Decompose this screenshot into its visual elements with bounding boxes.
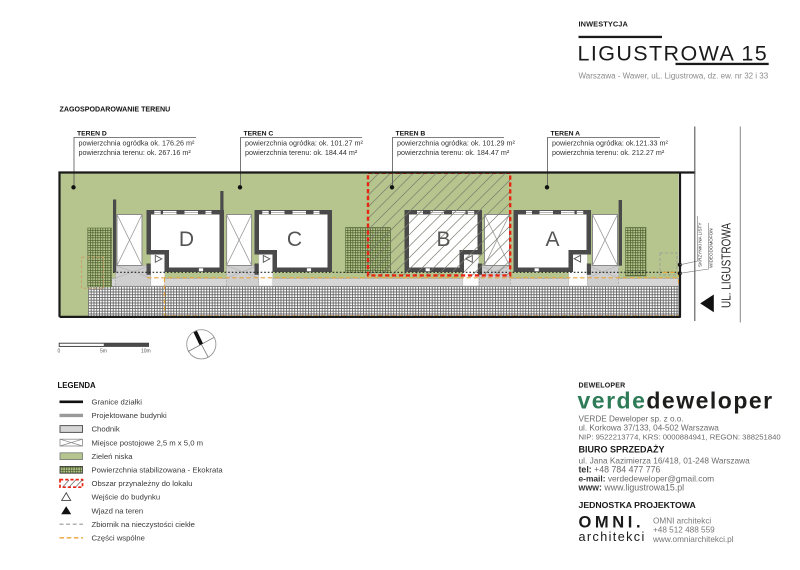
svg-text:Wjazd na teren: Wjazd na teren bbox=[92, 506, 144, 515]
svg-text:BIURO SPRZEDAŻY: BIURO SPRZEDAŻY bbox=[579, 445, 665, 455]
svg-text:JEDNOSTKA PROJEKTOWA: JEDNOSTKA PROJEKTOWA bbox=[579, 500, 697, 510]
svg-text:WIDEODOMOFON: WIDEODOMOFON bbox=[709, 228, 714, 268]
svg-text:ZAGOSPODAROWANIE TERENU: ZAGOSPODAROWANIE TERENU bbox=[60, 106, 171, 114]
svg-text:10m: 10m bbox=[141, 349, 151, 355]
svg-text:Obszar przynależny do lokalu: Obszar przynależny do lokalu bbox=[92, 479, 193, 488]
svg-text:powierzchnia terenu: ok. 184.4: powierzchnia terenu: ok. 184.47 m² bbox=[397, 148, 510, 157]
svg-text:TEREN D: TEREN D bbox=[77, 130, 107, 137]
svg-text:Granice działki: Granice działki bbox=[92, 398, 143, 407]
svg-text:verdedeweloper: verdedeweloper bbox=[578, 388, 774, 414]
svg-text:Warszawa - Wawer, uL. Ligustro: Warszawa - Wawer, uL. Ligustrowa, dz. ew… bbox=[579, 71, 769, 80]
svg-text:TEREN C: TEREN C bbox=[244, 130, 274, 137]
svg-text:OMNI architekci: OMNI architekci bbox=[653, 516, 711, 525]
svg-text:Miejsce postojowe 2,5 m x 5,0: Miejsce postojowe 2,5 m x 5,0 m bbox=[92, 438, 204, 447]
svg-text:architekci: architekci bbox=[579, 530, 646, 544]
svg-text:powierzchnia ogródka: ok.121.3: powierzchnia ogródka: ok.121.33 m² bbox=[552, 139, 668, 148]
svg-text:D: D bbox=[179, 228, 194, 251]
svg-text:powierzchnia ogródka: ok. 101.: powierzchnia ogródka: ok. 101.27 m² bbox=[245, 139, 363, 148]
svg-text:B: B bbox=[436, 228, 450, 251]
svg-text:Projektowane budynki: Projektowane budynki bbox=[92, 411, 168, 420]
svg-text:SKRZYNKI NA LISTY: SKRZYNKI NA LISTY bbox=[698, 223, 703, 267]
svg-text:powierzchnia terenu: ok. 184.4: powierzchnia terenu: ok. 184.44 m² bbox=[245, 148, 358, 157]
svg-text:www.omniarchitekci.pl: www.omniarchitekci.pl bbox=[652, 535, 734, 544]
svg-text:powierzchnia ogródka: ok. 101.: powierzchnia ogródka: ok. 101.29 m² bbox=[397, 139, 515, 148]
svg-text:NIP: 9522213774, KRS: 00008849: NIP: 9522213774, KRS: 0000884941, REGON:… bbox=[579, 432, 781, 441]
svg-text:powierzchnia terenu: ok. 212.2: powierzchnia terenu: ok. 212.27 m² bbox=[552, 148, 665, 157]
svg-text:UL. LIGUSTROWA: UL. LIGUSTROWA bbox=[719, 223, 734, 308]
svg-text:A: A bbox=[545, 228, 559, 251]
svg-text:Chodnik: Chodnik bbox=[92, 425, 120, 434]
svg-text:ul. Korkowa 37/133, 04-502 War: ul. Korkowa 37/133, 04-502 Warszawa bbox=[579, 423, 720, 432]
svg-text:Powierzchnia stabilizowana - E: Powierzchnia stabilizowana - Ekokrata bbox=[92, 466, 224, 475]
svg-text:5m: 5m bbox=[100, 349, 107, 355]
svg-text:powierzchnia ogródka ok. 176.2: powierzchnia ogródka ok. 176.26 m² bbox=[79, 139, 195, 148]
svg-text:TEREN A: TEREN A bbox=[551, 130, 581, 137]
svg-text:VERDE Deweloper sp. z o.o.: VERDE Deweloper sp. z o.o. bbox=[579, 414, 684, 423]
svg-text:Wejście do budynku: Wejście do budynku bbox=[92, 493, 161, 502]
svg-text:C: C bbox=[287, 228, 302, 251]
svg-text:LEGENDA: LEGENDA bbox=[58, 381, 96, 390]
svg-text:+48 512 488 559: +48 512 488 559 bbox=[653, 526, 715, 535]
svg-text:Części wspólne: Części wspólne bbox=[92, 534, 145, 543]
svg-text:TEREN B: TEREN B bbox=[396, 130, 426, 137]
svg-text:www: www.ligustrowa15.pl: www: www.ligustrowa15.pl bbox=[578, 482, 685, 492]
svg-text:Zieleń niska: Zieleń niska bbox=[92, 452, 134, 461]
svg-text:LIGUSTROWA 15: LIGUSTROWA 15 bbox=[578, 41, 769, 65]
svg-text:powierzchnia terenu: ok. 267.1: powierzchnia terenu: ok. 267.16 m² bbox=[79, 148, 192, 157]
svg-text:INWESTYCJA: INWESTYCJA bbox=[579, 19, 629, 28]
svg-text:Zbiornik na nieczystości ciekł: Zbiornik na nieczystości ciekłe bbox=[92, 520, 195, 529]
svg-text:OMNI.: OMNI. bbox=[579, 514, 645, 532]
svg-text:0: 0 bbox=[58, 349, 61, 355]
